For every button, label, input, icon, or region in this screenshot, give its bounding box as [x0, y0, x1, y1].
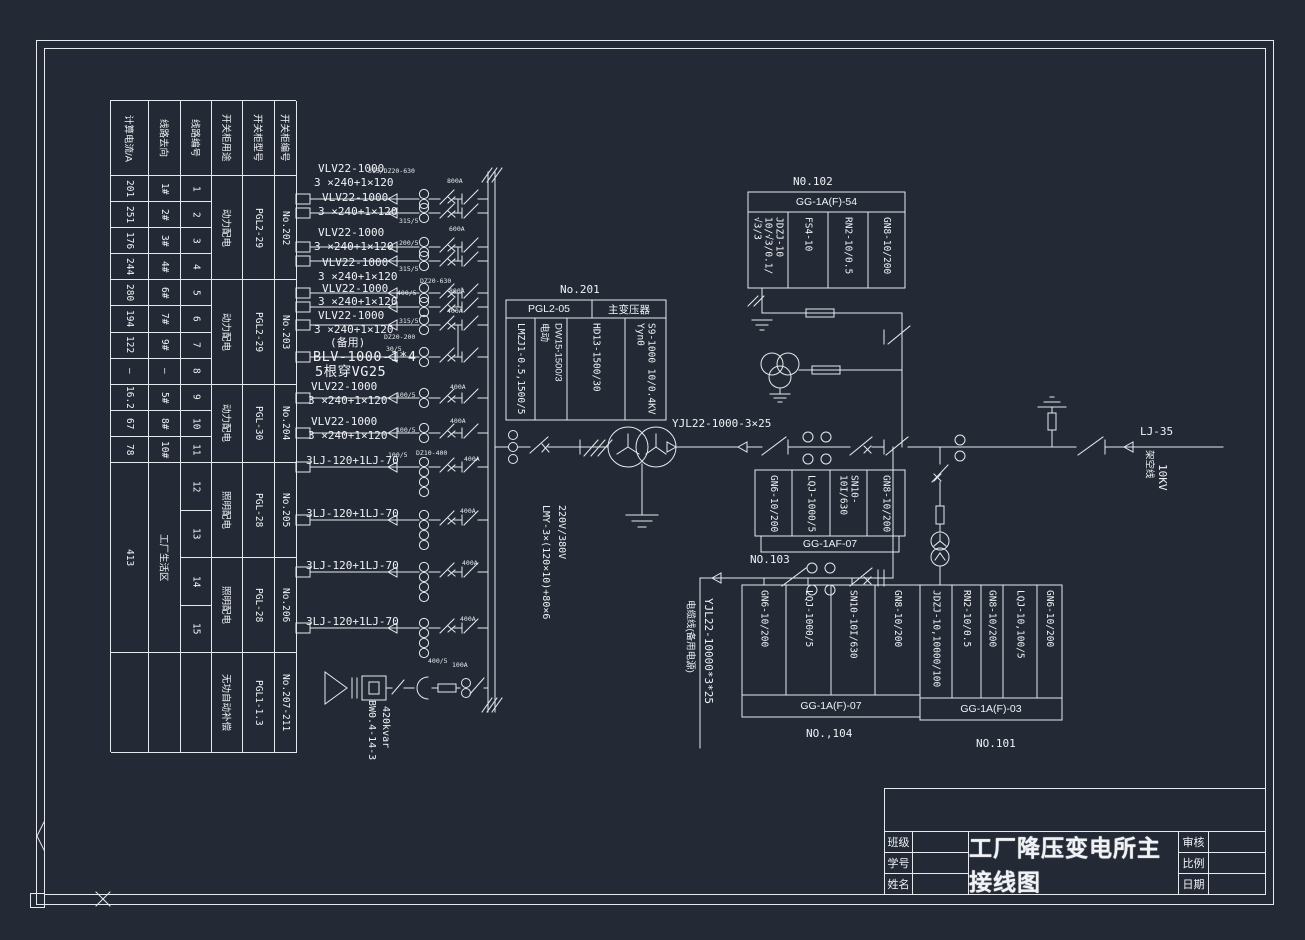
student-id-label: 学号: [885, 852, 912, 873]
box-column: SN10-10I/630: [840, 590, 866, 692]
box-column: RN2-10/0.5: [835, 217, 861, 285]
box-tag: NO.101: [976, 738, 1016, 750]
table-cell: 1#: [149, 176, 181, 202]
box-column-text: HD13-1500/30: [591, 323, 602, 392]
group-model: PGL-28: [243, 463, 275, 558]
annotation: 100/5: [396, 392, 416, 399]
table-cell: 10: [181, 411, 212, 437]
box-column: GN8-10/200: [873, 475, 899, 533]
table-cell: –: [149, 359, 181, 385]
table-cell-text: 计算电流/A: [123, 115, 137, 162]
box-tag: NO.,104: [806, 728, 852, 740]
title-block: 班级 学号 姓名 工厂降压变电所主接线图 审核 比例 日期: [884, 788, 1266, 895]
table-cell: 14: [181, 558, 212, 606]
table-cell: 8#: [149, 411, 181, 437]
table-cell-text: 4#: [159, 261, 170, 272]
table-cell-text: No.202: [280, 211, 291, 245]
box-column: LQJ-1000/5: [796, 590, 822, 692]
table-cell: 78: [111, 437, 149, 463]
table-cell-text: 6: [191, 316, 202, 322]
box-column-text: SN10-10I/630: [838, 475, 860, 533]
table-cell-text: 280: [124, 284, 135, 301]
box-label: GG-1A(F)-54: [748, 192, 905, 212]
table-cell-text: 线路编号: [189, 119, 203, 157]
box-column: GN8-10/200: [885, 590, 911, 692]
table-cell-text: 开关柜型号: [252, 114, 266, 162]
group-cabinet: No.204: [275, 385, 297, 463]
vertical-label: 架空线: [1143, 450, 1153, 479]
student-id-value[interactable]: [912, 852, 968, 873]
review-label: 审核: [1178, 831, 1208, 852]
table-cell-text: 照明配电: [220, 491, 234, 529]
table-cell-text: PGL2-29: [253, 312, 264, 352]
annotation: 315/5: [399, 266, 419, 273]
annotation: DZ20-200: [384, 334, 415, 341]
box-column-text: JDZJ-10,10000/100: [931, 590, 942, 687]
table-cell-text: 8: [191, 368, 202, 374]
class-value[interactable]: [912, 831, 968, 852]
table-cell-text: 1#: [159, 183, 170, 194]
table-cell-text: 5: [191, 290, 202, 296]
table-cell-text: –: [124, 368, 135, 374]
box-label: GG-1AF-07: [761, 536, 899, 552]
table-cell-text: 4: [191, 264, 202, 270]
circuit-table: 计算电流/A线路去向线路编号开关柜用途开关柜型号开关柜编号2011#12512#…: [110, 100, 296, 752]
box-column: FS4-10: [795, 217, 821, 285]
cable-label: 3 ×240+1×120: [314, 324, 393, 336]
box-label: GG-1A(F)-07: [742, 695, 920, 717]
annotation: 315/DZ20-630: [368, 168, 415, 175]
table-cell: 176: [111, 228, 149, 254]
cable-label: 5根穿VG25: [315, 365, 386, 380]
drawing-title-cell: 工厂降压变电所主接线图: [968, 831, 1178, 894]
table-cell: 7#: [149, 306, 181, 332]
table-cell-text: PGL2-29: [253, 208, 264, 248]
table-cell: 5: [181, 280, 212, 306]
scale-value[interactable]: [1208, 852, 1265, 873]
table-cell-text: 16.2: [124, 386, 135, 409]
annotation: 400A: [462, 560, 478, 567]
tag-label: LJ-35: [1140, 426, 1173, 438]
table-cell-text: 动力配电: [220, 404, 234, 442]
table-header: 开关柜编号: [275, 101, 297, 176]
box-column-text: GN8-10/200: [987, 590, 998, 647]
table-cell-text: PGL-28: [253, 493, 264, 527]
group-model: PGL2-29: [243, 280, 275, 384]
annotation: 400/5: [397, 290, 417, 297]
group-cabinet: No.203: [275, 280, 297, 384]
table-cell: 1: [181, 176, 212, 202]
cable-label: VLV22-1000: [311, 381, 377, 393]
table-cell: 9#: [149, 333, 181, 359]
vertical-label: BW0.4-14-3: [366, 700, 377, 760]
box-column-text: DW15-1500/3 电动: [539, 323, 564, 382]
annotation: 400A: [450, 384, 466, 391]
table-cell: 251: [111, 202, 149, 228]
box-column: HD13-1500/30: [583, 323, 609, 417]
cable-label: VLV22-1000: [318, 310, 384, 322]
title-block-top-band: [885, 789, 1265, 831]
table-cell: 12: [181, 463, 212, 511]
annotation: DZ10-400: [416, 450, 447, 457]
table-cell: 413: [111, 463, 149, 653]
table-cell: 工厂生活区: [149, 463, 181, 653]
box-column: GN6-10/200: [761, 475, 787, 533]
table-cell: 2: [181, 202, 212, 228]
table-cell-text: PGL1-1.3: [253, 680, 264, 726]
group-cabinet: No.202: [275, 176, 297, 280]
box-column: JDZJ-10 10/√3/0.1/√3/3: [755, 217, 781, 285]
table-cell-text: No.205: [280, 493, 291, 527]
table-cell: 201: [111, 176, 149, 202]
review-value[interactable]: [1208, 831, 1265, 852]
drawing-title: 工厂降压变电所主接线图: [969, 829, 1178, 897]
name-label: 姓名: [885, 873, 912, 894]
box-column-text: LQJ-1000/5: [803, 590, 814, 647]
table-cell-text: 201: [124, 180, 135, 197]
vertical-label: YJL22-10000*3*25: [702, 598, 714, 704]
table-cell: 13: [181, 511, 212, 559]
table-cell-text: 11: [191, 444, 202, 455]
box-column-text: GN6-10/200: [759, 590, 770, 647]
annotation: 800A: [447, 178, 463, 185]
cable-label: 3 ×240+1×120: [314, 241, 393, 253]
table-cell-text: 工厂生活区: [158, 534, 172, 582]
corner-box: [30, 893, 45, 908]
table-cell-text: 13: [191, 528, 202, 539]
table-cell: 3: [181, 228, 212, 254]
box-column: S9-1000 10/0.4KV Yyn0: [633, 323, 659, 417]
box-column-text: FS4-10: [803, 217, 814, 251]
table-cell-text: 开关柜编号: [279, 114, 293, 162]
box-column: DW15-1500/3 电动: [538, 323, 564, 417]
annotation: 400A: [460, 508, 476, 515]
table-cell-text: 2: [191, 212, 202, 218]
vertical-label: 电缆线(备用电源): [684, 600, 694, 673]
cable-label: 3LJ-120+1LJ-70: [306, 560, 399, 572]
table-cell-text: 122: [124, 336, 135, 353]
cable-label: 3LJ-120+1LJ-70: [306, 508, 399, 520]
box-column-text: LMZJ1-0.5,1500/5: [515, 323, 526, 415]
group-use: 无功自动补偿: [212, 653, 243, 753]
table-cell-text: 动力配电: [220, 313, 234, 351]
tag-label: No.201: [560, 284, 600, 296]
table-cell-text: 无功自动补偿: [220, 674, 234, 731]
cable-label: VLV22-1000: [322, 257, 388, 269]
cable-label: (备用): [330, 337, 365, 349]
class-label: 班级: [885, 831, 912, 852]
scale-label: 比例: [1178, 852, 1208, 873]
table-cell-text: 6#: [159, 287, 170, 298]
table-cell: 16.2: [111, 385, 149, 411]
table-cell-text: PGL-28: [253, 588, 264, 622]
table-cell-text: 244: [124, 258, 135, 275]
annotation: 800A: [449, 288, 465, 295]
vertical-label: 420kvar: [380, 706, 391, 748]
table-cell-text: No.207-211: [280, 674, 291, 731]
table-cell: [149, 653, 181, 753]
table-cell: 3#: [149, 228, 181, 254]
table-cell: 4: [181, 254, 212, 280]
table-cell: 4#: [149, 254, 181, 280]
annotation: 400A: [464, 456, 480, 463]
box-column: GN8-10/200: [874, 217, 900, 285]
table-cell-text: –: [159, 368, 170, 374]
box-column-text: RN2-10/0.5: [843, 217, 854, 274]
table-cell: 244: [111, 254, 149, 280]
name-value[interactable]: [912, 873, 968, 894]
cable-label: YJL22-1000-3×25: [672, 418, 771, 430]
box-column-text: GN8-10/200: [881, 217, 892, 274]
table-cell-text: 176: [124, 232, 135, 249]
cable-label: 3 ×240+1×120: [308, 395, 387, 407]
table-cell-text: PGL-30: [253, 406, 264, 440]
table-cell-text: 9#: [159, 339, 170, 350]
box-header: PGL2-05: [506, 300, 592, 318]
table-cell-text: 12: [191, 481, 202, 492]
annotation: 400/5: [428, 658, 448, 665]
table-cell-text: No.206: [280, 588, 291, 622]
table-header: 线路编号: [181, 101, 212, 176]
annotation: 100A: [452, 662, 468, 669]
cable-label: 3LJ-120+1LJ-70: [306, 616, 399, 628]
table-cell-text: 14: [191, 576, 202, 587]
date-value[interactable]: [1208, 873, 1265, 894]
box-column-text: RN2-10/0.5: [961, 590, 972, 647]
cable-label: 3 ×240+1×120: [308, 430, 387, 442]
box-column-text: GN8-10/200: [881, 475, 892, 532]
box-column: GN6-10/200: [1037, 590, 1063, 695]
table-cell-text: No.204: [280, 406, 291, 440]
box-tag: NO.103: [750, 554, 790, 566]
annotation: 315/5: [399, 318, 419, 325]
box-column: GN6-10/200: [751, 590, 777, 692]
box-column-text: SN10-10I/630: [848, 590, 859, 659]
box-column-text: GN8-10/200: [892, 590, 903, 647]
cable-label: 3LJ-120+1LJ-70: [306, 455, 399, 467]
table-cell: 11: [181, 437, 212, 463]
date-label: 日期: [1178, 873, 1208, 894]
table-cell: 5#: [149, 385, 181, 411]
box-column-text: GN6-10/200: [768, 475, 779, 532]
cable-label: 3 ×240+1×120: [318, 206, 397, 218]
annotation: 100/5: [388, 452, 408, 459]
table-cell-text: 9: [191, 394, 202, 400]
box-column-text: S9-1000 10/0.4KV Yyn0: [635, 323, 657, 415]
table-header: 开关柜用途: [212, 101, 243, 176]
group-use: 照明配电: [212, 558, 243, 653]
annotation: 400A: [450, 418, 466, 425]
annotation: DZ20-630: [420, 278, 451, 285]
cable-label: 3 ×240+1×120: [314, 177, 393, 189]
group-use: 照明配电: [212, 463, 243, 558]
table-cell-text: 67: [124, 418, 135, 429]
table-cell: [181, 653, 212, 753]
box-label: GG-1A(F)-03: [920, 698, 1062, 720]
box-column: GN8-10/200: [979, 590, 1005, 695]
box-column: JDZJ-10,10000/100: [923, 590, 949, 695]
table-cell: 122: [111, 333, 149, 359]
cable-label: 3 ×240+1×120: [318, 296, 397, 308]
table-cell-text: No.203: [280, 315, 291, 349]
table-cell: 6#: [149, 280, 181, 306]
annotation: 315/5: [399, 218, 419, 225]
vertical-label: 220V/380V: [556, 505, 567, 559]
box-column-text: LQJ-1000/5: [806, 475, 817, 532]
vertical-label: 10KV: [1156, 464, 1168, 491]
table-cell: 194: [111, 306, 149, 332]
group-model: PGL-30: [243, 385, 275, 463]
vertical-label: LMY-3×(120×10)+80×6: [540, 505, 551, 619]
table-cell: 6: [181, 306, 212, 332]
group-cabinet: No.205: [275, 463, 297, 558]
group-use: 动力配电: [212, 280, 243, 384]
table-cell-text: 78: [124, 444, 135, 455]
table-cell-text: 8#: [159, 418, 170, 429]
group-use: 动力配电: [212, 176, 243, 280]
table-cell-text: 动力配电: [220, 209, 234, 247]
box-header: 主变压器: [592, 300, 666, 318]
annotation: 30/5: [386, 346, 402, 353]
table-cell-text: 1: [191, 186, 202, 192]
cable-label: VLV22-1000: [311, 416, 377, 428]
table-header: 线路去向: [149, 101, 181, 176]
annotation: 200/5: [399, 240, 419, 247]
annotation: 400A: [447, 308, 463, 315]
cad-canvas: 计算电流/A线路去向线路编号开关柜用途开关柜型号开关柜编号2011#12512#…: [0, 0, 1305, 940]
group-use: 动力配电: [212, 385, 243, 463]
annotation: 400A: [460, 616, 476, 623]
table-cell-text: 开关柜用途: [220, 114, 234, 162]
cable-label: VLV22-1000: [322, 283, 388, 295]
table-cell: 67: [111, 411, 149, 437]
table-cell-text: 413: [124, 549, 135, 566]
cable-label: VLV22-1000: [318, 227, 384, 239]
box-column: LMZJ1-0.5,1500/5: [508, 323, 534, 417]
box-column: LQJ-1000/5: [798, 475, 824, 533]
table-cell-text: 5#: [159, 392, 170, 403]
table-cell-text: 251: [124, 206, 135, 223]
table-cell-text: 15: [191, 623, 202, 634]
box-column: LQJ-10,100/5: [1007, 590, 1033, 695]
group-model: PGL-28: [243, 558, 275, 653]
group-cabinet: No.206: [275, 558, 297, 653]
group-cabinet: No.207-211: [275, 653, 297, 753]
table-cell-text: 7#: [159, 313, 170, 324]
annotation: 100/5: [396, 427, 416, 434]
box-column: RN2-10/0.5: [954, 590, 980, 695]
table-cell-text: 7: [191, 342, 202, 348]
table-cell: 10#: [149, 437, 181, 463]
table-cell: 2#: [149, 202, 181, 228]
table-cell-text: 2#: [159, 209, 170, 220]
cable-label: VLV22-1000: [322, 192, 388, 204]
table-cell: 8: [181, 359, 212, 385]
group-model: PGL2-29: [243, 176, 275, 280]
box-column-text: GN6-10/200: [1044, 590, 1055, 647]
annotation: 600A: [449, 226, 465, 233]
table-cell: [111, 653, 149, 753]
table-cell: 15: [181, 606, 212, 654]
table-cell-text: 10#: [159, 441, 170, 458]
box-column-text: JDZJ-10 10/√3/0.1/√3/3: [752, 217, 785, 285]
table-header: 计算电流/A: [111, 101, 149, 176]
table-cell: 280: [111, 280, 149, 306]
table-cell: 9: [181, 385, 212, 411]
group-model: PGL1-1.3: [243, 653, 275, 753]
table-cell-text: 194: [124, 310, 135, 327]
table-header: 开关柜型号: [243, 101, 275, 176]
table-cell: –: [111, 359, 149, 385]
box-column-text: LQJ-10,100/5: [1015, 590, 1026, 659]
table-cell-text: 3#: [159, 235, 170, 246]
table-cell-text: 10: [191, 418, 202, 429]
box-tag: N0.102: [793, 176, 833, 188]
table-cell-text: 3: [191, 238, 202, 244]
box-column: SN10-10I/630: [836, 475, 862, 533]
table-cell: 7: [181, 333, 212, 359]
table-cell-text: 照明配电: [220, 586, 234, 624]
table-cell-text: 线路去向: [158, 119, 172, 157]
